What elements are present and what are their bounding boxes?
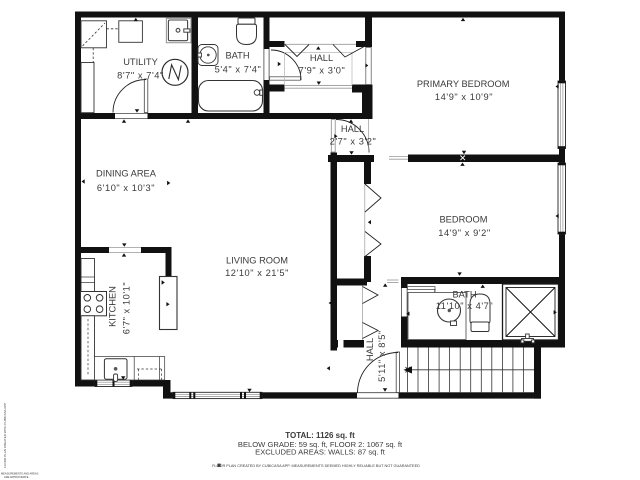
svg-text:PRIMARY BEDROOM: PRIMARY BEDROOM [417,79,510,89]
svg-text:7'9" x 3'0": 7'9" x 3'0" [299,66,346,76]
svg-text:TOTAL: 1126 sq. ft: TOTAL: 1126 sq. ft [285,431,355,440]
svg-text:EXCLUDED AREAS: WALLS: 87 sq.: EXCLUDED AREAS: WALLS: 87 sq. ft [255,448,386,457]
svg-text:HALL: HALL [310,53,333,63]
svg-text:FLOOR PLAN CREATED WITH CUBICA: FLOOR PLAN CREATED WITH CUBICASA APP [3,403,7,468]
svg-text:6'7" x 10'1": 6'7" x 10'1" [122,282,132,334]
svg-text:BATH: BATH [452,290,476,300]
svg-text:11'10" x 4'7": 11'10" x 4'7" [436,301,493,311]
svg-text:6'10" x 10'3": 6'10" x 10'3" [97,183,155,193]
svg-text:BATH: BATH [225,51,249,61]
svg-text:LIVING ROOM: LIVING ROOM [226,256,288,266]
svg-text:5'11" x 8'5": 5'11" x 8'5" [377,330,387,382]
svg-text:DINING AREA: DINING AREA [96,169,157,179]
svg-text:MEASUREMENTS AND AREAS: MEASUREMENTS AND AREAS [1,472,39,476]
svg-text:KITCHEN: KITCHEN [108,286,118,327]
svg-text:ARE APPROXIMATE: ARE APPROXIMATE [4,475,29,479]
svg-text:HALL: HALL [341,124,364,134]
svg-text:8'7" x 7'4": 8'7" x 7'4" [117,71,164,81]
svg-text:HALL: HALL [365,338,375,361]
svg-text:14'9" x 10'9": 14'9" x 10'9" [435,92,493,102]
svg-text:12'10" x 21'5": 12'10" x 21'5" [225,268,289,278]
svg-text:5'4" x 7'4": 5'4" x 7'4" [215,65,262,75]
svg-text:14'9" x 9'2": 14'9" x 9'2" [438,228,490,238]
svg-text:FLOOR PLAN CREATED BY CUBICASA: FLOOR PLAN CREATED BY CUBICASA APP. MEAS… [212,464,420,468]
svg-text:UTILITY: UTILITY [123,57,158,67]
svg-text:BEDROOM: BEDROOM [439,215,487,225]
svg-text:2'7" x 3'2": 2'7" x 3'2" [330,137,377,147]
